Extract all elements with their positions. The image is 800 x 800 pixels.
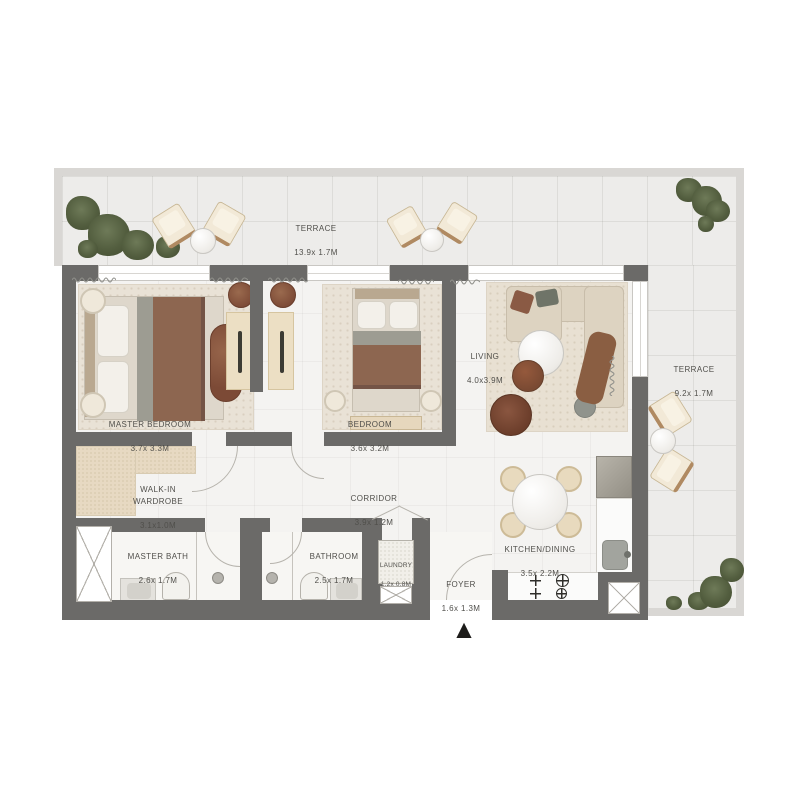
room-name: FOYER	[430, 579, 492, 591]
service-shaft	[608, 582, 640, 614]
room-label-master-bedroom: MASTER BEDROOM 3.7x 3.3M	[72, 407, 228, 467]
curtain-squiggle-icon	[398, 278, 434, 286]
sink-faucet	[624, 551, 631, 558]
room-dims: 3.9x 1.2M	[332, 517, 416, 529]
bed-throw	[153, 297, 205, 421]
bed-duvet-fold	[353, 331, 421, 345]
room-label-corridor: CORRIDOR 3.9x 1.2M	[332, 481, 416, 541]
room-name: BEDROOM	[318, 419, 422, 431]
side-table	[420, 390, 442, 412]
room-dims: 2.6x 1.7M	[116, 575, 200, 587]
room-dims: 2.5x 1.7M	[292, 575, 376, 587]
room-name: BATHROOM	[292, 551, 376, 563]
terrace-table	[650, 428, 676, 454]
window	[632, 281, 648, 377]
room-label-living: LIVING 4.0x3.9M	[446, 339, 524, 399]
armchair	[490, 394, 532, 436]
wall-segment	[250, 281, 263, 392]
wall-segment	[632, 377, 648, 608]
room-name: TERRACE	[648, 364, 740, 376]
curtain-squiggle-icon	[210, 276, 248, 284]
kitchen-appliance	[596, 456, 632, 498]
room-dims: 1.2x 0.8M	[374, 580, 418, 590]
curtain-squiggle-icon	[450, 278, 480, 286]
room-name: TERRACE	[260, 223, 372, 235]
room-dims: 4.0x3.9M	[446, 375, 524, 387]
curtain-squiggle-icon	[72, 276, 116, 284]
room-label-kitchen-dining: KITCHEN/DINING 3.5x 2.2M	[486, 532, 594, 592]
terrace-edge-left	[54, 176, 62, 266]
shower-head-icon	[212, 572, 224, 584]
room-label-laundry: LAUNDRY 1.2x 0.8M	[374, 551, 418, 600]
vanity-console	[226, 312, 252, 390]
vanity-stool	[270, 282, 296, 308]
room-dims: 3.5x 2.2M	[486, 568, 594, 580]
entry-arrow-icon: ▲	[448, 616, 480, 642]
terrace-table	[190, 228, 216, 254]
wall-segment	[226, 432, 292, 446]
wall-segment	[62, 600, 430, 620]
vanity-console	[268, 312, 294, 390]
floor-plan: ▲ TERRACE 13.9x 1.7M MASTER BEDROOM 3.7x…	[0, 0, 800, 800]
room-name: MASTER BATH	[116, 551, 200, 563]
curtain-squiggle-icon	[608, 356, 616, 396]
bed-duvet-fold	[137, 297, 153, 421]
room-label-terrace-right: TERRACE 9.2x 1.7M	[648, 352, 740, 412]
room-label-walk-in-wardrobe: WALK-IN WARDROBE 3.1x1.0M	[116, 472, 200, 544]
room-name: LAUNDRY	[374, 561, 418, 571]
room-name: LIVING	[446, 351, 524, 363]
bed-pillow	[389, 301, 418, 329]
room-label-bedroom: BEDROOM 3.6x 3.2M	[318, 407, 422, 467]
door-swing-arc	[205, 532, 240, 567]
terrace-table	[420, 228, 444, 252]
service-shaft	[76, 526, 112, 602]
window	[468, 265, 624, 281]
room-name: KITCHEN/DINING	[486, 544, 594, 556]
room-dims: 3.7x 3.3M	[72, 443, 228, 455]
room-label-master-bath: MASTER BATH 2.6x 1.7M	[116, 539, 200, 599]
curtain-squiggle-icon	[268, 276, 308, 284]
bed-throw	[353, 345, 421, 389]
room-name: MASTER BEDROOM	[72, 419, 228, 431]
dining-table	[512, 474, 568, 530]
room-dims: 13.9x 1.7M	[260, 247, 372, 259]
room-dims: 9.2x 1.7M	[648, 388, 740, 400]
wall-segment	[624, 265, 648, 281]
room-dims: 3.6x 3.2M	[318, 443, 422, 455]
room-dims: 3.1x1.0M	[116, 520, 200, 532]
bed-pillow	[357, 301, 386, 329]
bed	[352, 288, 420, 412]
shower-head-icon	[266, 572, 278, 584]
room-name: WALK-IN WARDROBE	[116, 484, 200, 508]
bed-pillow	[97, 305, 129, 357]
terrace-edge-top	[54, 168, 744, 176]
room-label-terrace-top: TERRACE 13.9x 1.7M	[260, 211, 372, 271]
room-label-bathroom: BATHROOM 2.5x 1.7M	[292, 539, 376, 599]
nightstand	[80, 288, 106, 314]
room-name: CORRIDOR	[332, 493, 416, 505]
bed-headboard	[355, 289, 419, 299]
